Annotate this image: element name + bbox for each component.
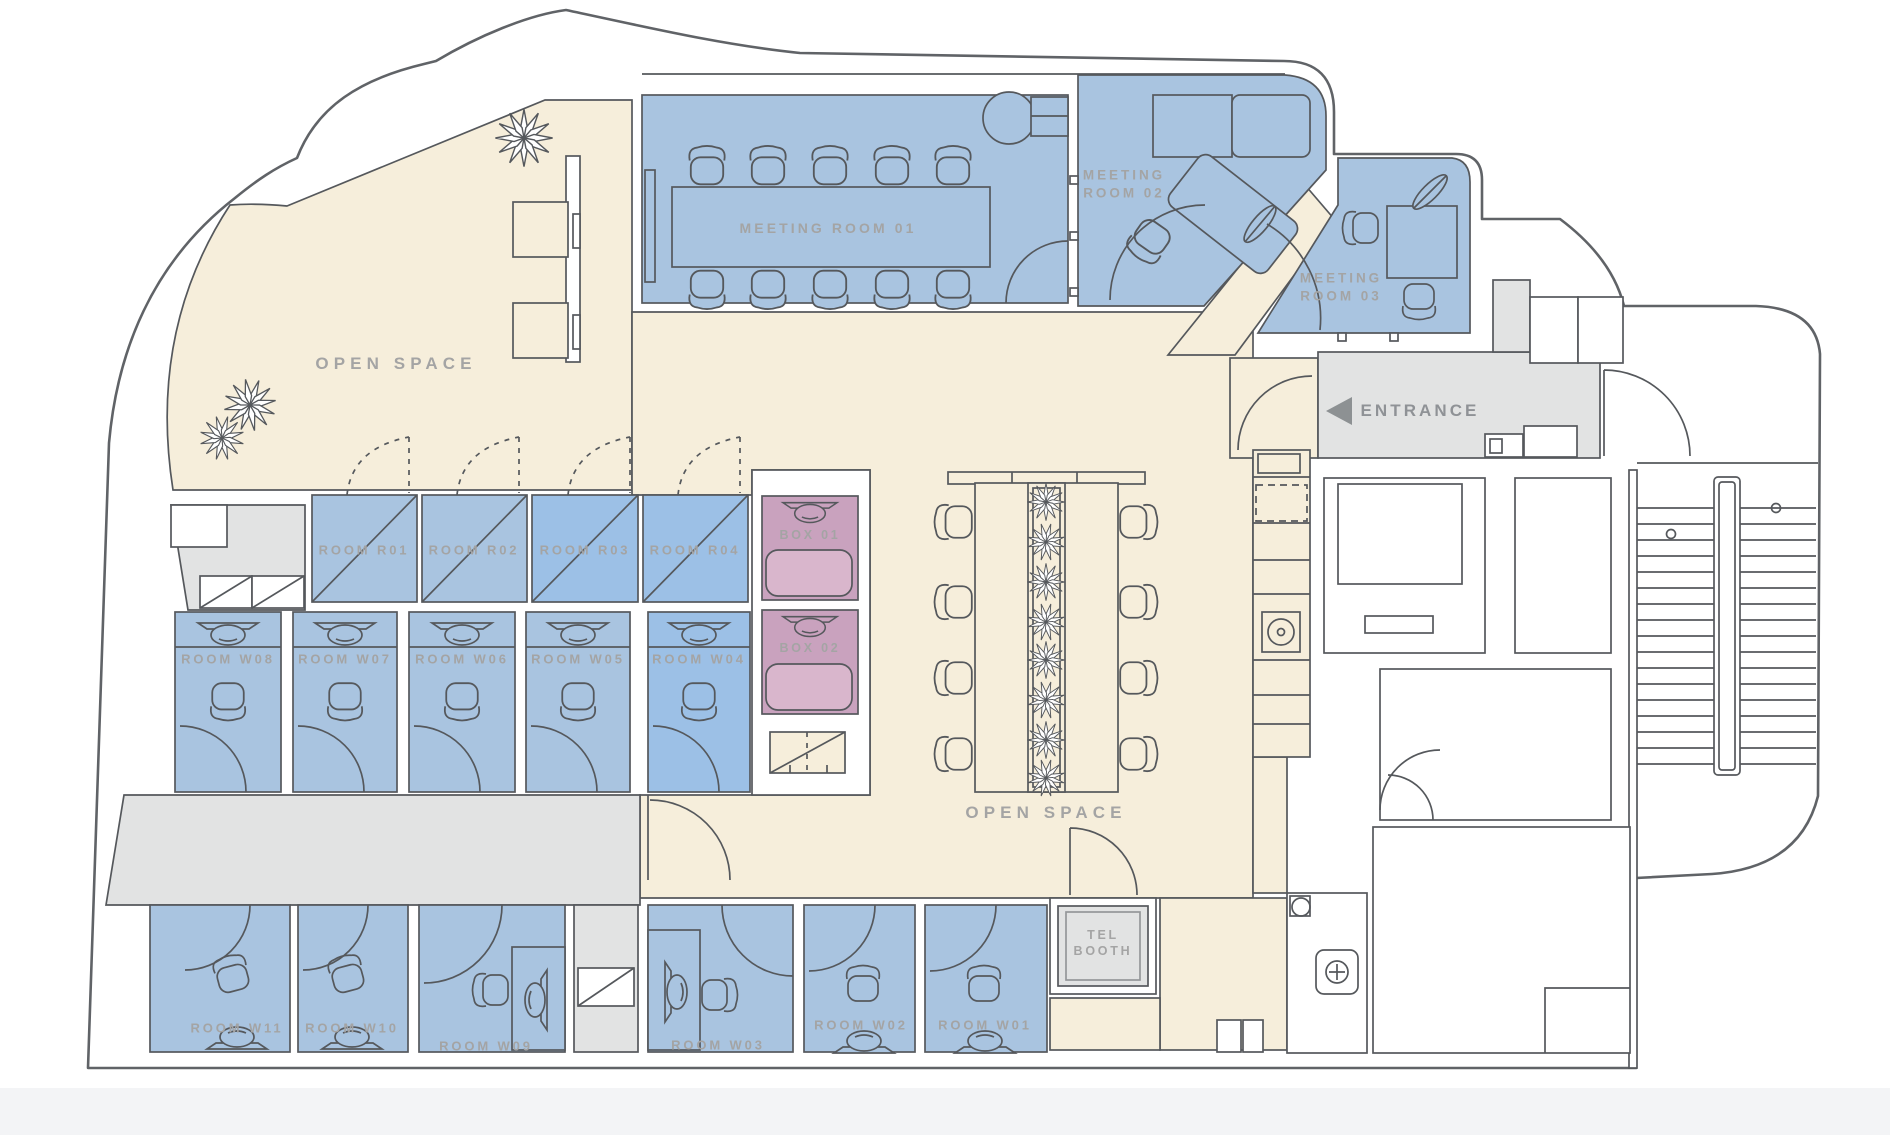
label-room-w08: ROOM W08 <box>181 652 275 669</box>
label-box-02: BOX 02 <box>780 640 841 656</box>
label-tel-booth: TEL BOOTH <box>1074 927 1133 960</box>
label-meeting-room-02: MEETING ROOM 02 <box>1083 166 1165 201</box>
w-rooms-middle-row <box>175 612 750 792</box>
label-room-w02: ROOM W02 <box>814 1018 908 1035</box>
label-room-w01: ROOM W01 <box>938 1018 1032 1035</box>
label-room-r03: ROOM R03 <box>540 543 631 560</box>
label-room-r02: ROOM R02 <box>429 543 520 560</box>
w-rooms-bottom-row <box>150 905 1047 1053</box>
elevator-room <box>1324 478 1485 653</box>
label-room-w10: ROOM W10 <box>305 1021 399 1038</box>
label-meeting-room-03: MEETING ROOM 03 <box>1300 269 1382 304</box>
wc-room <box>1287 893 1367 1053</box>
label-open-space-center: OPEN SPACE <box>965 802 1126 824</box>
label-room-w05: ROOM W05 <box>531 652 625 669</box>
label-room-w11: ROOM W11 <box>191 1021 284 1038</box>
label-box-01: BOX 01 <box>780 527 841 543</box>
floor-plan: OPEN SPACE MEETING ROOM 01 MEETING ROOM … <box>0 0 1890 1135</box>
label-meeting-room-01: MEETING ROOM 01 <box>740 219 917 237</box>
label-room-w04: ROOM W04 <box>652 652 746 669</box>
floor-plan-drawing <box>0 0 1890 1135</box>
label-open-space-left: OPEN SPACE <box>315 353 476 375</box>
utility-left-block <box>171 505 305 610</box>
label-room-w09: ROOM W09 <box>439 1039 533 1056</box>
label-room-r01: ROOM R01 <box>319 543 410 560</box>
meeting-room-01-area <box>642 92 1068 309</box>
corridor-floor <box>106 795 640 905</box>
label-room-r04: ROOM R04 <box>650 543 741 560</box>
label-room-w06: ROOM W06 <box>415 652 509 669</box>
label-room-w07: ROOM W07 <box>298 652 392 669</box>
label-room-w03: ROOM W03 <box>671 1038 765 1055</box>
box-column <box>752 470 870 795</box>
label-entrance: ENTRANCE <box>1361 400 1480 422</box>
